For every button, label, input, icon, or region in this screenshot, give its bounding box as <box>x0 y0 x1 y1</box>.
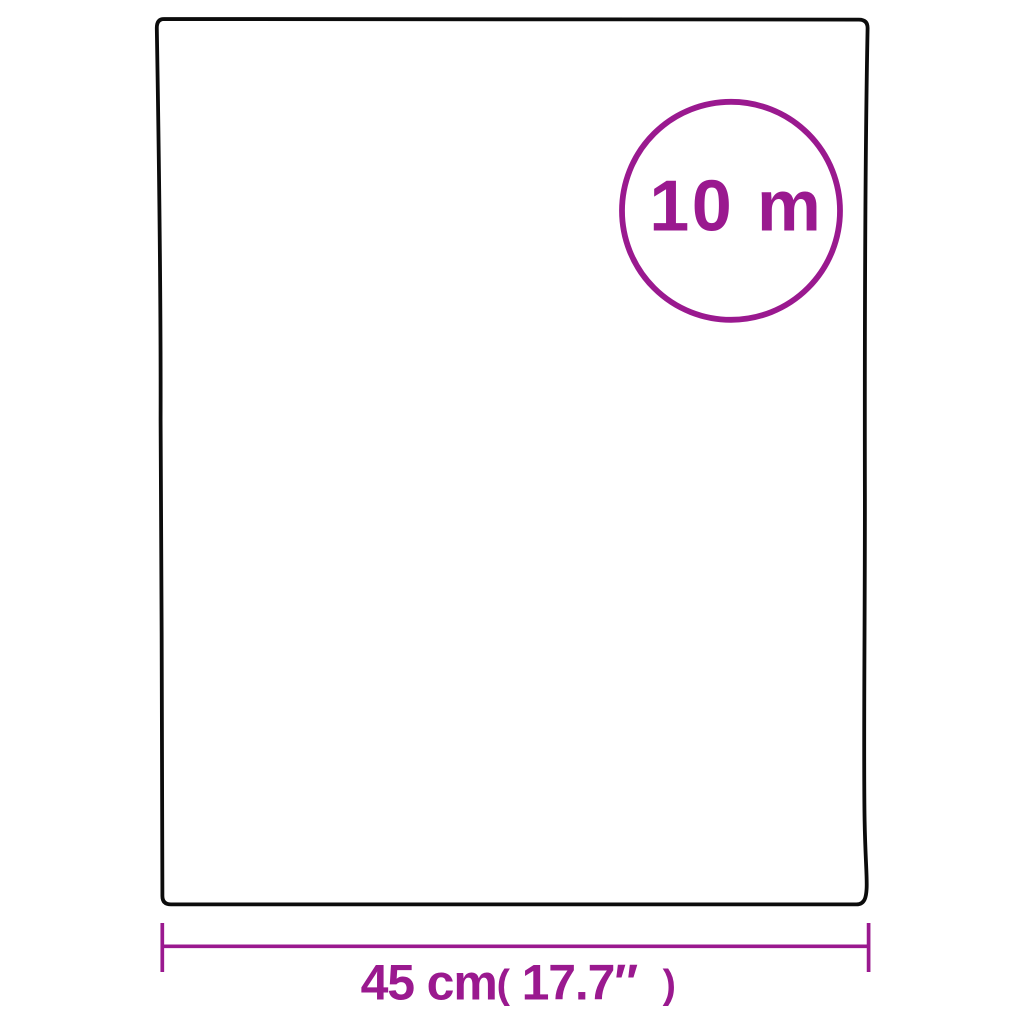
svg-text:10 m: 10 m <box>649 167 823 247</box>
svg-text:45 cm( 17.7″ ): 45 cm( 17.7″ ) <box>361 955 675 1011</box>
